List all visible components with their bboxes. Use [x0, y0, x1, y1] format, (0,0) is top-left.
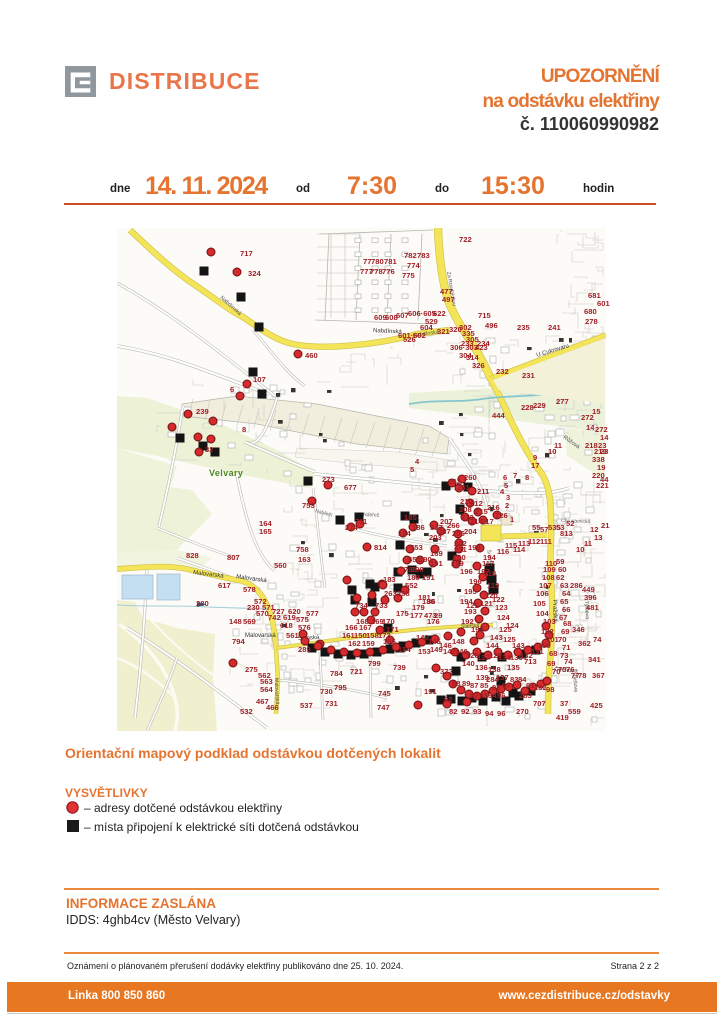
- svg-text:711: 711: [355, 517, 368, 526]
- svg-text:154: 154: [398, 645, 411, 654]
- svg-text:14: 14: [586, 423, 595, 432]
- svg-text:537: 537: [300, 701, 313, 710]
- svg-text:70: 70: [552, 667, 560, 676]
- svg-text:781: 781: [384, 257, 397, 266]
- svg-text:198: 198: [468, 543, 481, 552]
- svg-text:717: 717: [240, 249, 253, 258]
- svg-text:774: 774: [407, 261, 420, 270]
- svg-text:196: 196: [469, 577, 482, 586]
- svg-text:396: 396: [584, 593, 597, 602]
- svg-text:569: 569: [243, 617, 256, 626]
- svg-text:372: 372: [440, 667, 453, 676]
- svg-text:782: 782: [404, 251, 417, 260]
- svg-text:778: 778: [370, 267, 383, 276]
- svg-text:92: 92: [461, 707, 469, 716]
- svg-text:742: 742: [268, 613, 281, 622]
- svg-text:171: 171: [386, 625, 399, 634]
- svg-text:497: 497: [442, 295, 455, 304]
- svg-text:74: 74: [593, 635, 602, 644]
- svg-text:601: 601: [597, 299, 610, 308]
- svg-text:425: 425: [590, 701, 603, 710]
- svg-text:121: 121: [466, 601, 479, 610]
- svg-text:106: 106: [536, 589, 549, 598]
- svg-text:175: 175: [396, 609, 409, 618]
- svg-text:52: 52: [566, 519, 574, 528]
- svg-text:96: 96: [497, 691, 505, 700]
- svg-text:707: 707: [533, 699, 546, 708]
- svg-text:163: 163: [298, 555, 311, 564]
- svg-text:177: 177: [410, 611, 423, 620]
- svg-text:576: 576: [298, 623, 311, 632]
- svg-text:578: 578: [243, 585, 256, 594]
- svg-text:131: 131: [531, 647, 544, 656]
- svg-text:96: 96: [497, 709, 505, 718]
- svg-text:111: 111: [540, 537, 553, 546]
- svg-text:341: 341: [588, 655, 601, 664]
- svg-text:783: 783: [417, 251, 430, 260]
- svg-text:119: 119: [487, 581, 499, 590]
- svg-text:21: 21: [601, 521, 610, 530]
- svg-text:526: 526: [403, 335, 416, 344]
- svg-text:44: 44: [600, 475, 609, 484]
- svg-text:162: 162: [348, 639, 361, 648]
- svg-text:82: 82: [444, 695, 452, 704]
- svg-text:734: 734: [355, 601, 368, 610]
- svg-text:794: 794: [232, 637, 245, 646]
- svg-text:280: 280: [196, 599, 209, 608]
- svg-text:10: 10: [576, 545, 584, 554]
- svg-text:32: 32: [205, 445, 213, 454]
- svg-text:813: 813: [560, 529, 573, 538]
- svg-text:159: 159: [362, 639, 375, 648]
- svg-text:55: 55: [532, 523, 541, 532]
- svg-text:828: 828: [186, 551, 199, 560]
- svg-text:564: 564: [260, 685, 273, 694]
- svg-text:362: 362: [578, 639, 591, 648]
- svg-text:144: 144: [486, 641, 499, 650]
- svg-text:195: 195: [464, 587, 477, 596]
- svg-text:338: 338: [592, 455, 605, 464]
- svg-text:Velvary: Velvary: [209, 468, 243, 478]
- svg-text:93: 93: [473, 707, 481, 716]
- svg-text:98: 98: [546, 685, 554, 694]
- svg-text:143: 143: [512, 641, 525, 650]
- svg-text:419: 419: [556, 713, 569, 722]
- svg-text:Malovarská: Malovarská: [245, 633, 276, 639]
- svg-text:570: 570: [256, 609, 269, 618]
- svg-text:92: 92: [470, 691, 478, 700]
- svg-text:17: 17: [531, 461, 539, 470]
- svg-text:Malovarská: Malovarská: [273, 678, 280, 705]
- svg-text:183: 183: [383, 575, 396, 584]
- svg-text:758: 758: [296, 545, 309, 554]
- svg-text:6: 6: [230, 385, 234, 394]
- svg-text:13: 13: [594, 533, 602, 542]
- svg-text:211: 211: [477, 487, 490, 496]
- svg-text:184: 184: [398, 529, 411, 538]
- svg-text:186: 186: [412, 523, 425, 532]
- svg-text:607: 607: [396, 311, 409, 320]
- svg-text:552: 552: [405, 581, 418, 590]
- svg-text:93: 93: [479, 691, 487, 700]
- svg-text:733: 733: [375, 601, 388, 610]
- svg-text:270: 270: [516, 707, 529, 716]
- svg-text:103: 103: [543, 617, 556, 626]
- svg-text:283: 283: [519, 691, 532, 700]
- svg-text:191: 191: [422, 573, 435, 582]
- svg-text:118: 118: [484, 569, 496, 578]
- svg-text:722: 722: [459, 235, 472, 244]
- svg-text:367: 367: [592, 671, 605, 680]
- svg-text:85: 85: [480, 681, 489, 690]
- svg-text:286: 286: [570, 581, 583, 590]
- svg-text:140: 140: [462, 659, 475, 668]
- svg-text:135: 135: [507, 663, 520, 672]
- svg-text:753: 753: [302, 501, 315, 510]
- svg-text:460: 460: [305, 351, 318, 360]
- svg-text:114: 114: [513, 545, 526, 554]
- svg-text:105: 105: [533, 599, 546, 608]
- svg-text:148: 148: [452, 637, 465, 646]
- svg-text:814: 814: [374, 543, 387, 552]
- svg-text:87: 87: [470, 681, 478, 690]
- svg-text:784: 784: [330, 669, 343, 678]
- svg-text:466: 466: [266, 703, 279, 712]
- svg-text:278: 278: [585, 317, 598, 326]
- svg-text:780: 780: [371, 257, 384, 266]
- svg-text:153: 153: [418, 647, 431, 656]
- svg-text:241: 241: [548, 323, 561, 332]
- svg-text:189: 189: [430, 549, 443, 558]
- svg-text:481: 481: [586, 603, 599, 612]
- svg-text:739: 739: [393, 663, 406, 672]
- svg-text:57: 57: [540, 525, 548, 534]
- svg-text:617: 617: [218, 581, 231, 590]
- svg-text:680: 680: [584, 307, 597, 316]
- svg-text:185: 185: [404, 513, 417, 522]
- svg-text:88: 88: [452, 679, 460, 688]
- svg-text:19: 19: [597, 463, 605, 472]
- svg-text:273: 273: [322, 475, 335, 484]
- svg-text:145: 145: [428, 637, 441, 646]
- svg-text:8: 8: [242, 425, 246, 434]
- svg-text:194: 194: [483, 553, 496, 562]
- svg-text:239: 239: [196, 407, 209, 416]
- svg-text:191: 191: [424, 687, 437, 696]
- svg-text:263: 263: [384, 589, 397, 598]
- svg-text:277: 277: [556, 397, 569, 406]
- svg-text:229: 229: [533, 401, 546, 410]
- svg-text:775: 775: [402, 271, 415, 280]
- svg-text:730: 730: [320, 687, 333, 696]
- svg-text:78: 78: [578, 671, 586, 680]
- svg-text:258: 258: [397, 589, 410, 598]
- svg-text:747: 747: [377, 703, 390, 712]
- svg-text:189: 189: [407, 573, 420, 582]
- svg-text:260: 260: [464, 473, 477, 482]
- svg-text:606·605: 606·605: [408, 309, 437, 318]
- svg-text:203: 203: [429, 533, 442, 542]
- svg-text:228: 228: [521, 403, 534, 412]
- svg-text:715: 715: [478, 311, 491, 320]
- svg-text:82: 82: [449, 707, 457, 716]
- svg-text:191: 191: [430, 559, 443, 568]
- svg-text:196: 196: [460, 567, 473, 576]
- svg-text:807: 807: [227, 553, 240, 562]
- svg-text:136: 136: [475, 663, 488, 672]
- svg-text:289: 289: [298, 645, 311, 654]
- svg-text:232: 232: [496, 367, 509, 376]
- svg-text:7: 7: [513, 471, 517, 480]
- svg-text:560: 560: [274, 561, 287, 570]
- svg-text:577: 577: [306, 609, 319, 618]
- svg-text:192: 192: [471, 625, 484, 634]
- svg-text:745: 745: [378, 689, 391, 698]
- svg-text:561: 561: [286, 631, 299, 640]
- svg-text:137: 137: [496, 673, 509, 682]
- svg-text:532: 532: [240, 707, 253, 716]
- svg-text:444: 444: [492, 411, 505, 420]
- svg-text:124: 124: [506, 621, 519, 630]
- svg-text:216: 216: [487, 503, 500, 512]
- svg-text:148: 148: [229, 617, 242, 626]
- svg-text:799: 799: [368, 659, 381, 668]
- svg-text:234: 234: [477, 339, 490, 348]
- svg-text:127: 127: [477, 653, 490, 662]
- svg-text:346: 346: [572, 625, 585, 634]
- svg-text:2: 2: [505, 501, 509, 510]
- svg-text:713: 713: [524, 657, 537, 666]
- svg-text:231: 231: [522, 371, 535, 380]
- svg-text:204: 204: [464, 527, 477, 536]
- svg-text:731: 731: [325, 699, 338, 708]
- svg-text:107: 107: [253, 375, 266, 384]
- svg-text:496: 496: [485, 321, 498, 330]
- svg-text:11: 11: [554, 441, 563, 450]
- svg-text:721: 721: [350, 667, 363, 676]
- svg-text:235: 235: [517, 323, 530, 332]
- svg-text:233: 233: [461, 339, 474, 348]
- svg-text:272: 272: [581, 413, 594, 422]
- svg-text:324: 324: [248, 269, 261, 278]
- svg-text:11: 11: [584, 539, 593, 548]
- svg-text:261: 261: [457, 483, 470, 492]
- svg-text:68: 68: [549, 649, 557, 658]
- svg-text:116: 116: [497, 547, 509, 556]
- svg-text:559: 559: [568, 707, 581, 716]
- svg-text:112: 112: [528, 537, 540, 546]
- svg-text:146: 146: [439, 641, 452, 650]
- svg-text:553: 553: [410, 543, 423, 552]
- svg-text:473: 473: [424, 611, 437, 620]
- svg-text:123: 123: [495, 603, 508, 612]
- svg-text:165: 165: [259, 527, 272, 536]
- svg-text:94: 94: [485, 709, 494, 718]
- svg-text:217: 217: [481, 517, 494, 526]
- svg-text:94: 94: [488, 691, 497, 700]
- svg-text:282: 282: [534, 683, 547, 692]
- svg-text:8: 8: [525, 473, 529, 482]
- svg-text:140: 140: [416, 633, 429, 642]
- svg-text:726: 726: [495, 511, 508, 520]
- svg-text:618: 618: [280, 621, 293, 630]
- svg-text:677: 677: [344, 483, 357, 492]
- svg-text:275: 275: [245, 665, 258, 674]
- svg-text:326: 326: [472, 361, 485, 370]
- svg-text:776: 776: [382, 267, 395, 276]
- svg-text:23: 23: [598, 441, 606, 450]
- svg-text:795: 795: [334, 683, 347, 692]
